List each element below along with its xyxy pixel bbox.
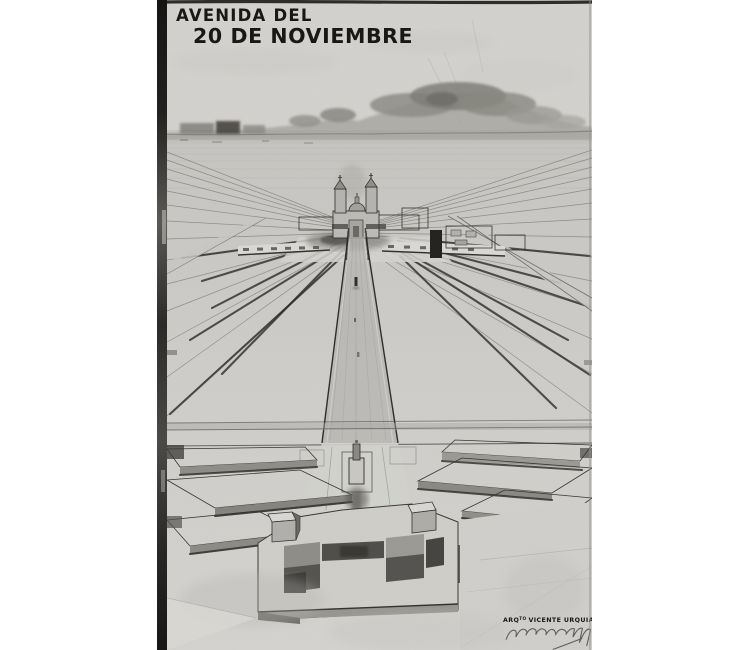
artwork-canvas: AVENIDA DEL 20 DE NOVIEMBRE ARQTOVICENTE… (0, 0, 750, 650)
scanned-drawing-page: AVENIDA DEL 20 DE NOVIEMBRE ARQTOVICENTE… (0, 0, 750, 650)
paper-grain (157, 0, 592, 650)
